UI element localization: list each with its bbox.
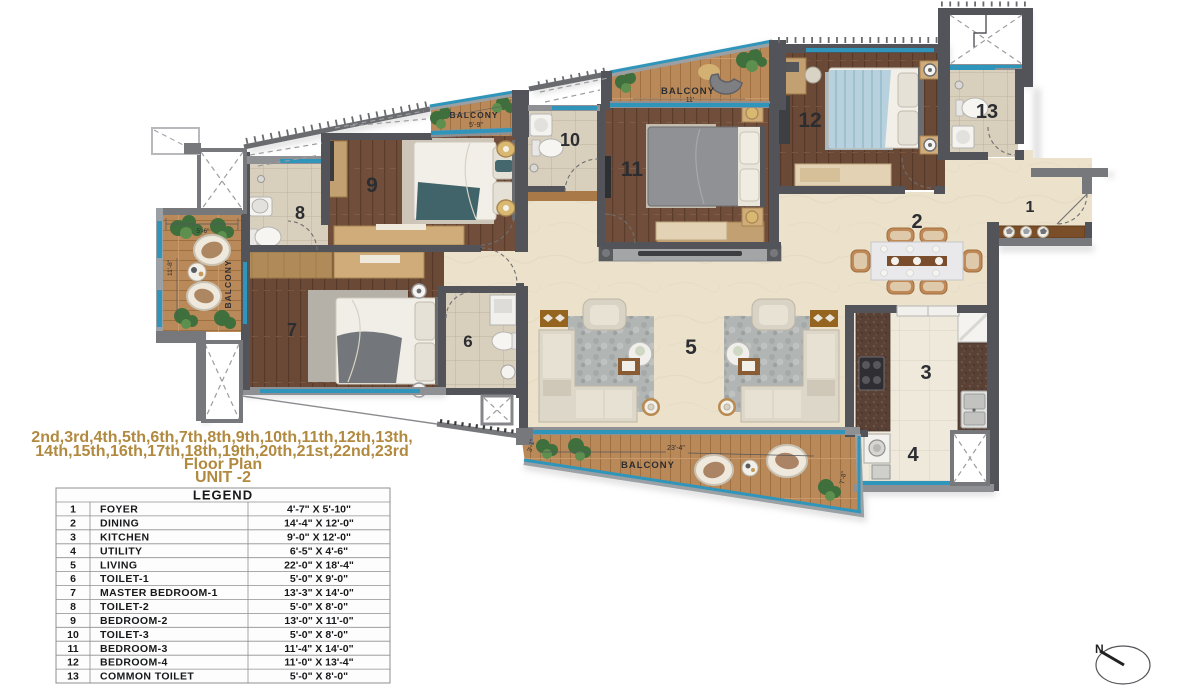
svg-text:13: 13: [976, 101, 998, 123]
svg-text:5'-0" X 8'-0": 5'-0" X 8'-0": [290, 629, 348, 641]
svg-text:COMMON TOILET: COMMON TOILET: [100, 671, 194, 683]
svg-text:FOYER: FOYER: [100, 504, 138, 516]
svg-text:3: 3: [70, 531, 76, 543]
svg-text:1: 1: [70, 504, 76, 516]
svg-text:3: 3: [920, 362, 931, 384]
svg-text:2: 2: [911, 211, 922, 233]
svg-text:UNIT -2: UNIT -2: [195, 469, 251, 486]
svg-text:BEDROOM-4: BEDROOM-4: [100, 657, 168, 669]
svg-text:2: 2: [70, 518, 76, 530]
svg-text:UTILITY: UTILITY: [100, 545, 142, 557]
svg-text:11'-4" X 14'-0": 11'-4" X 14'-0": [284, 643, 353, 655]
svg-text:N: N: [1095, 642, 1104, 656]
svg-text:11: 11: [621, 158, 644, 181]
svg-text:13'-3" X 14'-0": 13'-3" X 14'-0": [284, 587, 354, 599]
svg-text:KITCHEN: KITCHEN: [100, 531, 149, 543]
svg-text:5'-9": 5'-9": [469, 122, 483, 129]
svg-text:6'-5" X 4'-6": 6'-5" X 4'-6": [290, 545, 348, 557]
svg-text:DINING: DINING: [100, 518, 139, 530]
svg-text:9: 9: [366, 174, 378, 197]
svg-text:11'-8": 11'-8": [167, 259, 174, 276]
svg-text:5: 5: [685, 336, 697, 359]
svg-text:11: 11: [67, 643, 78, 655]
svg-text:8: 8: [295, 203, 305, 223]
svg-text:13: 13: [67, 671, 79, 683]
svg-text:14'-4" X 12'-0": 14'-4" X 12'-0": [284, 518, 354, 530]
svg-text:10: 10: [560, 130, 580, 150]
svg-text:BALCONY: BALCONY: [223, 259, 233, 308]
svg-text:22'-0" X 18'-4": 22'-0" X 18'-4": [284, 559, 354, 571]
svg-text:4: 4: [907, 444, 919, 466]
svg-text:1: 1: [1026, 199, 1035, 216]
svg-text:LEGEND: LEGEND: [193, 488, 253, 503]
svg-text:5: 5: [70, 559, 76, 571]
svg-text:11': 11': [686, 97, 695, 104]
svg-text:6: 6: [463, 332, 472, 351]
svg-text:TOILET-2: TOILET-2: [100, 601, 149, 613]
svg-text:4: 4: [70, 545, 76, 557]
svg-text:6: 6: [70, 573, 76, 585]
svg-text:LIVING: LIVING: [100, 559, 137, 571]
svg-text:7: 7: [70, 587, 76, 599]
svg-text:5'-0" X 8'-0": 5'-0" X 8'-0": [290, 601, 348, 613]
svg-text:BEDROOM-3: BEDROOM-3: [100, 643, 168, 655]
svg-text:BEDROOM-2: BEDROOM-2: [100, 615, 168, 627]
svg-text:7: 7: [287, 320, 297, 340]
svg-text:11'-0" X 13'-4": 11'-0" X 13'-4": [284, 657, 353, 669]
svg-text:12: 12: [798, 109, 821, 132]
svg-text:9: 9: [70, 615, 76, 627]
svg-text:9'-0" X 12'-0": 9'-0" X 12'-0": [287, 531, 351, 543]
svg-text:13'-0" X 11'-0": 13'-0" X 11'-0": [284, 615, 353, 627]
svg-text:BALCONY: BALCONY: [661, 86, 715, 97]
svg-text:4'-7" X 5'-10": 4'-7" X 5'-10": [287, 504, 351, 516]
svg-text:8: 8: [70, 601, 76, 613]
svg-text:MASTER BEDROOM-1: MASTER BEDROOM-1: [100, 587, 218, 599]
svg-text:5'-0" X 9'-0": 5'-0" X 9'-0": [290, 573, 348, 585]
svg-text:23'-4": 23'-4": [667, 445, 685, 452]
svg-text:BALCONY: BALCONY: [621, 460, 675, 471]
svg-text:10: 10: [67, 629, 79, 641]
svg-text:5'-0" X 8'-0": 5'-0" X 8'-0": [290, 671, 348, 683]
svg-text:TOILET-3: TOILET-3: [100, 629, 149, 641]
svg-text:5'-6": 5'-6": [197, 228, 211, 235]
svg-text:12: 12: [67, 657, 79, 669]
svg-text:TOILET-1: TOILET-1: [100, 573, 149, 585]
